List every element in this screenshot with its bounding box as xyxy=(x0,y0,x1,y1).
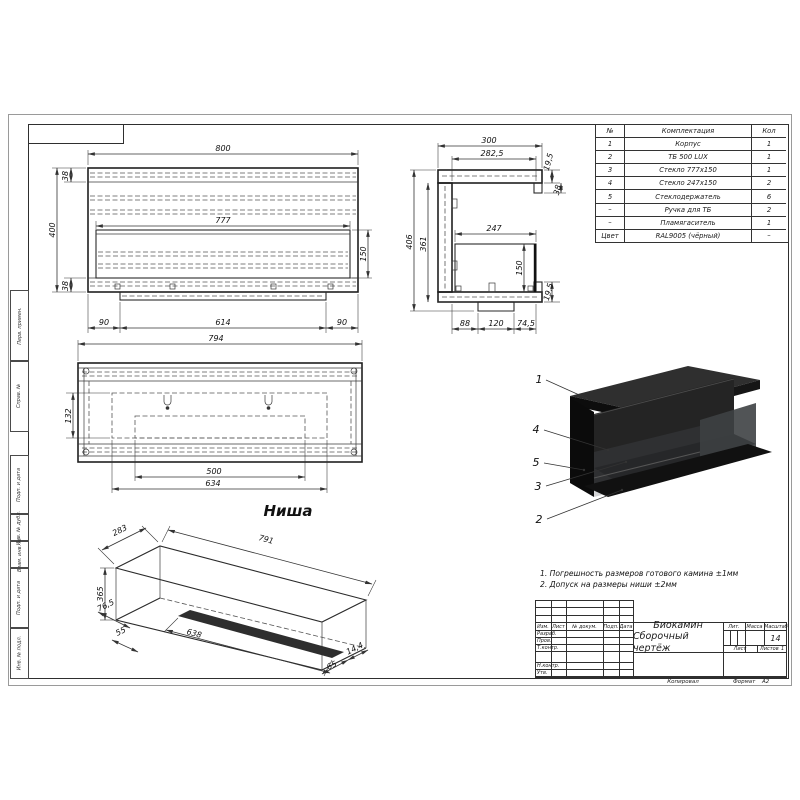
dim-777: 777 xyxy=(215,216,231,225)
dim-283: 283 xyxy=(111,523,129,538)
dim-400: 400 xyxy=(48,222,57,237)
callout-4: 4 xyxy=(533,423,540,436)
dim-150: 150 xyxy=(359,246,368,261)
dim-55: 55 xyxy=(114,625,127,638)
copied-label: Копировал xyxy=(648,679,718,685)
dim-365: 365 xyxy=(96,586,105,601)
dim-247: 247 xyxy=(486,224,502,233)
callout-2: 2 xyxy=(536,513,543,526)
dim-800: 800 xyxy=(215,144,230,153)
fireplace-3d-render xyxy=(570,366,772,497)
dim-120: 120 xyxy=(488,319,503,328)
dim-88: 88 xyxy=(460,319,470,328)
notes: 1. Погрешность размеров готового камина … xyxy=(540,569,739,589)
dim-614: 614 xyxy=(215,318,230,327)
side-view-geometry xyxy=(438,170,542,311)
niche-label: Ниша xyxy=(263,502,312,520)
dim-19-5-bottom: 19,5 xyxy=(542,282,555,302)
sheet-label: Лист xyxy=(723,646,757,652)
col-izm: Изм. xyxy=(535,624,551,630)
dim-38-flange: 38 xyxy=(552,184,563,196)
dim-282-5: 282,5 xyxy=(481,149,504,158)
plan-view-dimensions: 794 132 500 634 Ниша xyxy=(64,334,362,520)
note-1: 1. Погрешность размеров готового камина … xyxy=(540,569,739,578)
mass-label: Масса xyxy=(745,624,764,630)
dim-634: 634 xyxy=(205,479,220,488)
col-date: Дата xyxy=(619,624,633,630)
dim-406: 406 xyxy=(405,234,414,249)
front-view-geometry xyxy=(88,168,358,300)
row-ncontrol: Н.контр. xyxy=(537,663,559,669)
dim-361: 361 xyxy=(419,236,428,251)
col-list: Лист xyxy=(551,624,566,630)
dim-794: 794 xyxy=(208,334,223,343)
row-tcontrol: Т.контр. xyxy=(537,645,559,651)
dim-150-side: 150 xyxy=(515,260,524,275)
title-block: Изм. Лист № докум. Подп. Дата Разраб. Пр… xyxy=(535,600,787,677)
col-doc: № докум. xyxy=(566,624,603,630)
callout-5: 5 xyxy=(533,456,540,469)
dim-500: 500 xyxy=(206,467,221,476)
format-label: Формат xyxy=(733,679,755,685)
dim-90-left: 90 xyxy=(99,318,109,327)
note-2: 2. Допуск на размеры ниши ±2мм xyxy=(540,580,677,589)
lit-label: Лит. xyxy=(723,624,745,630)
callout-1: 1 xyxy=(536,373,543,386)
side-view-dimensions: 300 282,5 19,5 38 406 361 247 150 19,5 8… xyxy=(405,136,566,334)
format-value: А2 xyxy=(762,679,769,685)
dim-38-bottom: 38 xyxy=(61,281,70,291)
dim-300: 300 xyxy=(481,136,496,145)
dim-65: 65 xyxy=(325,659,338,672)
col-sign: Подп. xyxy=(603,624,619,630)
document-title: Биокамин Сборочный чертёж xyxy=(633,622,723,652)
iso-view-geometry xyxy=(116,546,366,670)
dim-791: 791 xyxy=(258,533,275,546)
row-approve: Утв. xyxy=(537,670,548,676)
dim-74-5: 74,5 xyxy=(517,319,535,328)
sheets-label: Листов xyxy=(760,646,779,652)
dim-38-top: 38 xyxy=(61,171,70,181)
dim-132: 132 xyxy=(64,408,73,423)
title-line-1: Биокамин xyxy=(653,620,703,631)
sheets-value: 1 xyxy=(781,646,784,652)
scale-label: Масштаб xyxy=(764,624,787,630)
callout-3: 3 xyxy=(535,480,542,493)
plan-view-geometry xyxy=(78,363,362,462)
dim-19-5-top: 19,5 xyxy=(542,152,555,172)
title-line-2: Сборочный чертёж xyxy=(633,631,723,654)
row-check: Пров. xyxy=(537,638,552,644)
dim-90-right: 90 xyxy=(337,318,347,327)
row-develop: Разраб. xyxy=(537,631,557,637)
front-view-dimensions: 800 38 400 38 777 150 90 614 90 xyxy=(48,144,372,333)
scale-value: 14 xyxy=(764,634,787,643)
